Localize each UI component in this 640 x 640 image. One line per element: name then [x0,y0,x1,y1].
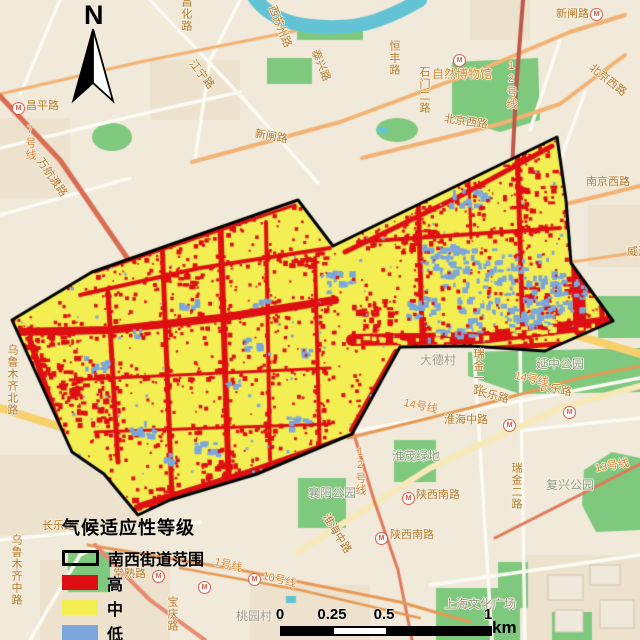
road-label: 乌鲁木齐北路 [6,344,18,416]
metro-station-icon: M [453,54,466,67]
road-label: 新闸路 [556,8,589,20]
legend-item-high: 高 [62,575,204,590]
park-label: 复兴公园 [546,479,594,491]
legend-item-label: 南西街道范围 [108,546,204,570]
legend-item-medium: 中 [62,600,204,615]
legend-item-boundary: 南西街道范围 [62,550,204,565]
metro-station-icon: M [563,406,576,419]
legend-item-label: 低 [107,621,123,640]
map-legend: 气候适应性等级 南西街道范围 高 中 低 [62,514,204,640]
metro-station-icon: M [12,102,25,115]
park-label: 延中公园 [536,358,584,370]
medium-swatch [62,600,98,615]
road-label: 昌平路 [26,100,59,112]
road-label: 石门二路 [418,66,430,114]
road-label: 大德村 [420,354,456,366]
road-label: 乌鲁木齐中路 [10,534,22,606]
road-label: 恒丰路 [388,40,400,76]
road-label: 南京西路 [586,176,630,188]
legend-item-low: 低 [62,625,204,640]
boundary-swatch [62,550,99,566]
legend-title: 气候适应性等级 [62,514,204,540]
metro-line-label: 12号线 [354,446,366,496]
metro-station-icon: M [248,573,261,586]
road-label: 昌化路 [180,0,192,32]
metro-line-label: 12号线 [505,60,517,110]
low-swatch [62,625,98,640]
metro-station-icon: M [503,419,516,432]
road-label: 陕西南路 [416,489,460,501]
road-label: 陕西南路 [390,529,434,541]
metro-station-icon: M [402,492,415,505]
road-label: 瑞金二路 [510,462,522,510]
north-arrow-icon [70,27,122,107]
metro-station-icon: M [375,532,388,545]
north-arrow: N [70,0,122,110]
legend-item-label: 中 [107,596,123,620]
road-label: 威海路 [627,246,640,258]
road-label: 桃园村 [236,610,272,622]
road-label: 淮海中路 [444,414,488,426]
road-label: 自然博物馆 [432,68,492,80]
legend-item-label: 高 [107,571,123,595]
climate-adaptability-map: 昌平路昌化路江宁路西苏州路泰兴路恒丰路12号线石门二路自然博物馆新闸路新闸路北京… [0,0,640,640]
park-label: 淮茂绿地 [392,450,440,462]
metro-station-icon: M [590,8,603,21]
park-label: 襄阳公园 [308,487,356,499]
metro-line-label: 7号线 [24,124,36,161]
high-swatch [62,575,98,590]
road-label: 上海文化广场 [444,598,516,610]
